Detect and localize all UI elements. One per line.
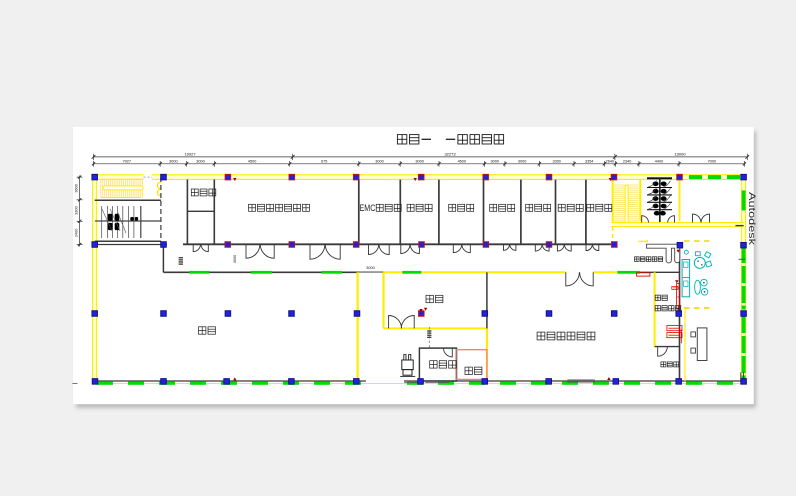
svg-text:4500: 4500 bbox=[458, 159, 466, 163]
svg-text:EMC: EMC bbox=[360, 203, 376, 213]
svg-text:13000: 13000 bbox=[674, 151, 686, 156]
svg-text:3354: 3354 bbox=[585, 159, 593, 163]
svg-text:2340: 2340 bbox=[623, 159, 631, 163]
svg-text:3000: 3000 bbox=[196, 159, 204, 163]
svg-text:3300: 3300 bbox=[74, 206, 78, 214]
svg-text:3000: 3000 bbox=[490, 159, 498, 163]
svg-text:3600: 3600 bbox=[74, 184, 78, 192]
svg-text:675: 675 bbox=[321, 159, 327, 163]
svg-text:3000: 3000 bbox=[233, 255, 237, 263]
svg-text:3000: 3000 bbox=[415, 159, 423, 163]
svg-text:3300: 3300 bbox=[552, 159, 560, 163]
svg-text:2400: 2400 bbox=[74, 229, 78, 237]
svg-text:Autodesk: Autodesk bbox=[747, 192, 757, 246]
svg-text:3000: 3000 bbox=[169, 159, 177, 163]
svg-text:3000: 3000 bbox=[518, 159, 526, 163]
svg-text:19927: 19927 bbox=[184, 151, 196, 156]
svg-text:4500: 4500 bbox=[248, 159, 256, 163]
svg-text:7927: 7927 bbox=[123, 159, 131, 163]
svg-text:32273: 32273 bbox=[444, 151, 456, 156]
svg-text:4400: 4400 bbox=[655, 159, 663, 163]
svg-text:3000: 3000 bbox=[366, 266, 374, 270]
svg-text:7000: 7000 bbox=[708, 159, 716, 163]
svg-text:3000: 3000 bbox=[375, 159, 383, 163]
svg-text:2640: 2640 bbox=[606, 159, 614, 163]
